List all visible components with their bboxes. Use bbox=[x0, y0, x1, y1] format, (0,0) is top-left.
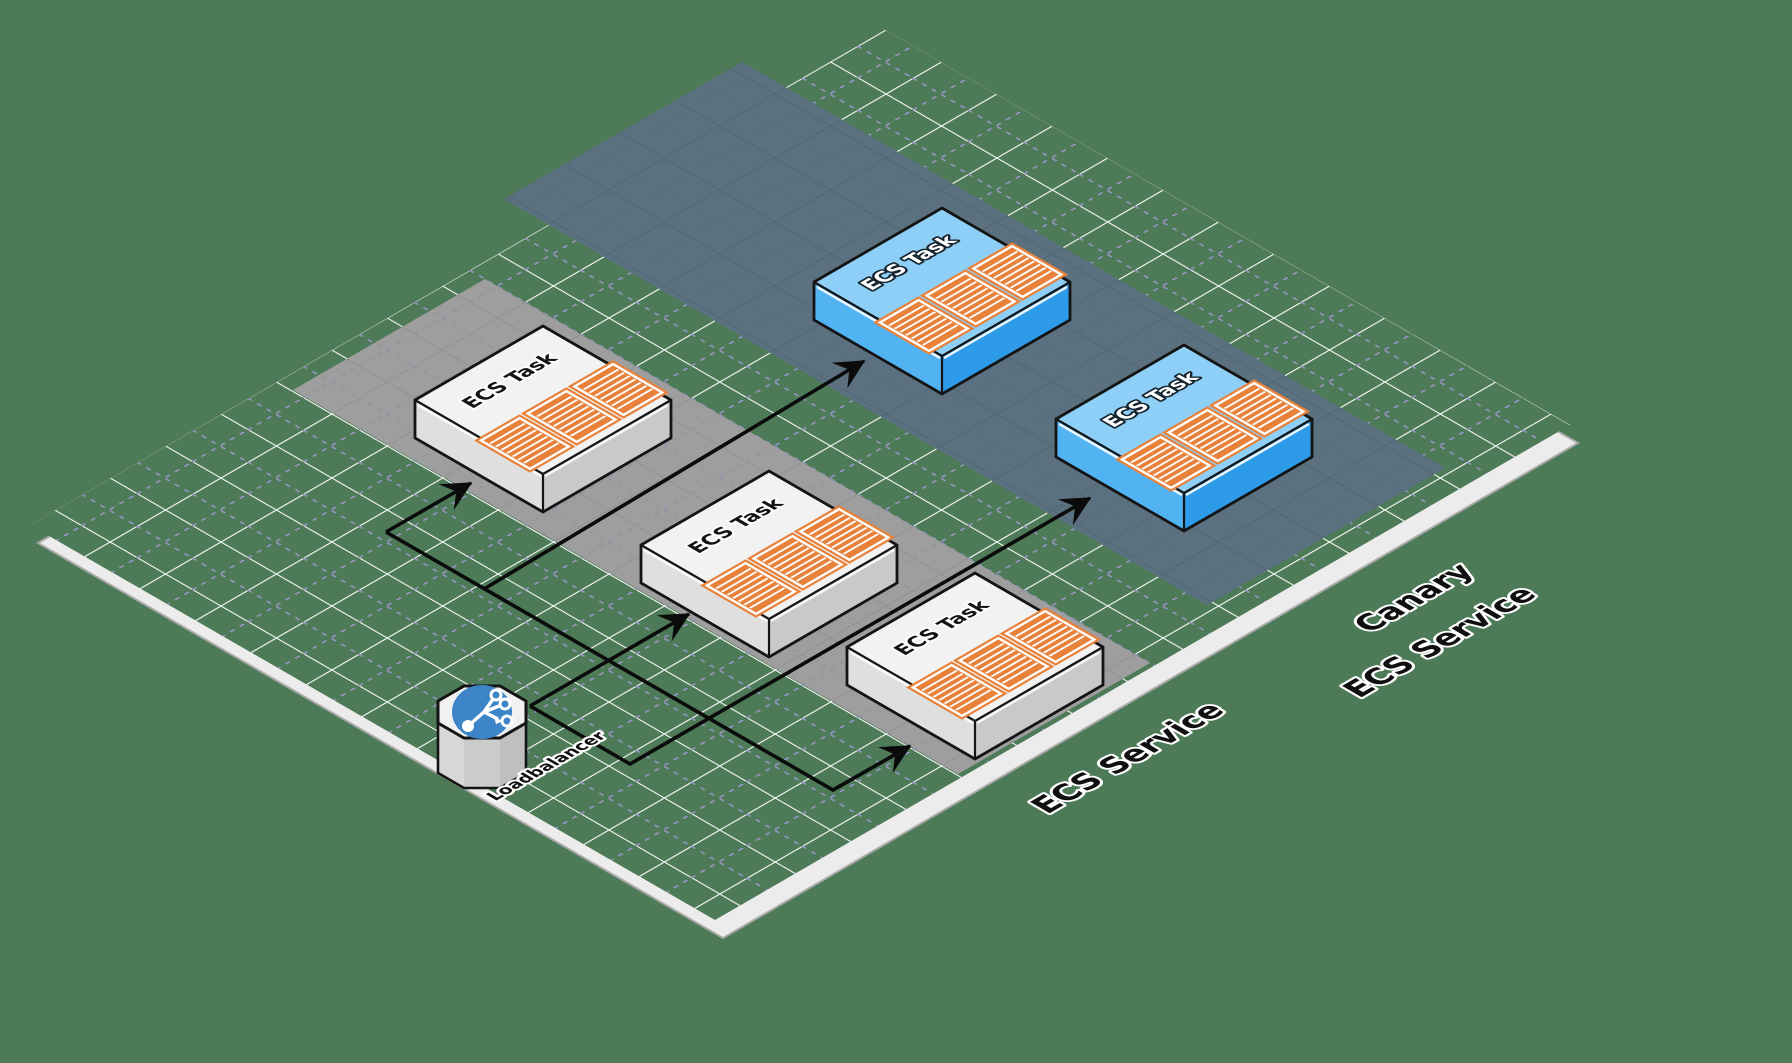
load-balancer-icon bbox=[452, 685, 512, 739]
isometric-ecs-diagram: ECS Service Canary ECS Service ECS Task … bbox=[0, 0, 1792, 1063]
